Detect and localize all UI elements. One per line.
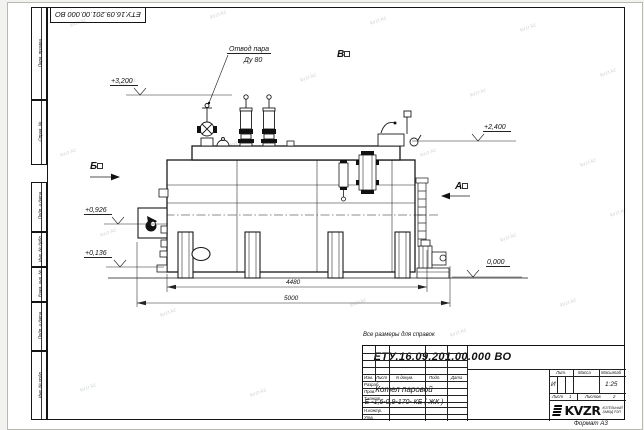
company-name: КОТЕЛЬНЫЙ ЗАВОД РЭП bbox=[603, 406, 623, 414]
sheet-value: 1 bbox=[569, 394, 571, 399]
side-ladder bbox=[416, 178, 428, 247]
steam-valve bbox=[197, 104, 217, 147]
row-prov: Пров. bbox=[364, 389, 375, 394]
row-tkontr: Т.контр. bbox=[364, 396, 381, 401]
col-date: Дата bbox=[451, 375, 462, 380]
col-doc: N докум. bbox=[396, 375, 413, 380]
dimension-4480: 4480 bbox=[286, 279, 300, 286]
sheets-value: 2 bbox=[613, 394, 615, 399]
mass-header: Масса bbox=[578, 370, 591, 375]
safety-valve-2 bbox=[261, 95, 277, 146]
col-izm: Изм. bbox=[364, 375, 373, 380]
view-marker-v: В bbox=[337, 49, 350, 60]
col-sign: Подп. bbox=[429, 375, 440, 380]
dimension-5000: 5000 bbox=[284, 295, 298, 302]
drum-dome bbox=[217, 138, 229, 147]
view-marker-a: А bbox=[455, 181, 468, 192]
sheets-label: Листов bbox=[585, 394, 601, 399]
manhole bbox=[192, 248, 210, 261]
level-gauge-large bbox=[356, 151, 379, 194]
blueprint-page: { "sheet": { "format_label": "Формат А3"… bbox=[0, 0, 644, 430]
scale-header: Масштаб bbox=[601, 370, 621, 375]
steam-leader bbox=[208, 55, 228, 104]
kvzr-logo-text: KVZR bbox=[564, 403, 600, 418]
view-marker-sub bbox=[344, 51, 350, 57]
safety-valve-1 bbox=[238, 95, 254, 146]
company-name-line2: ЗАВОД РЭП bbox=[603, 410, 621, 414]
reference-note: Все размеры для справок bbox=[363, 332, 435, 338]
format-label: Формат А3 bbox=[574, 420, 608, 427]
sheet-label: Лист bbox=[552, 394, 563, 399]
doc-number: ЕТУ.16.09.201.00.000 ВО bbox=[363, 346, 522, 369]
elevation-2400: +2,400 bbox=[483, 124, 511, 132]
row-razrab: Разраб. bbox=[364, 382, 380, 387]
steam-note-line2: Ду 80 bbox=[244, 57, 262, 64]
row-nkontr: Н.контр. bbox=[364, 408, 382, 413]
elevation-0000: 0,000 bbox=[486, 259, 510, 267]
lit-value: И bbox=[551, 381, 556, 388]
row-utv: Утв. bbox=[364, 415, 374, 420]
burner bbox=[138, 208, 167, 238]
drum-nub bbox=[287, 141, 294, 146]
title-block: Изм. Лист N докум. Подп. Дата Разраб. Пр… bbox=[362, 345, 625, 420]
elevation-0136: +0,136 bbox=[84, 250, 112, 258]
scale-value: 1:25 bbox=[605, 381, 617, 388]
lit-header: Лит. bbox=[556, 370, 566, 375]
view-marker-sub bbox=[462, 183, 468, 189]
view-marker-b: Б bbox=[90, 161, 103, 172]
feed-pump bbox=[417, 240, 449, 278]
elevation-3200: +3,200 bbox=[110, 78, 138, 86]
company-logo-cell: KVZR КОТЕЛЬНЫЙ ЗАВОД РЭП bbox=[550, 400, 625, 420]
view-marker-sub bbox=[97, 163, 103, 169]
kvzr-logo-icon bbox=[552, 405, 562, 416]
elevation-0926: +0,926 bbox=[84, 207, 112, 215]
col-list: Лист bbox=[376, 375, 387, 380]
steam-note-line1: Отвод пара bbox=[227, 46, 271, 54]
